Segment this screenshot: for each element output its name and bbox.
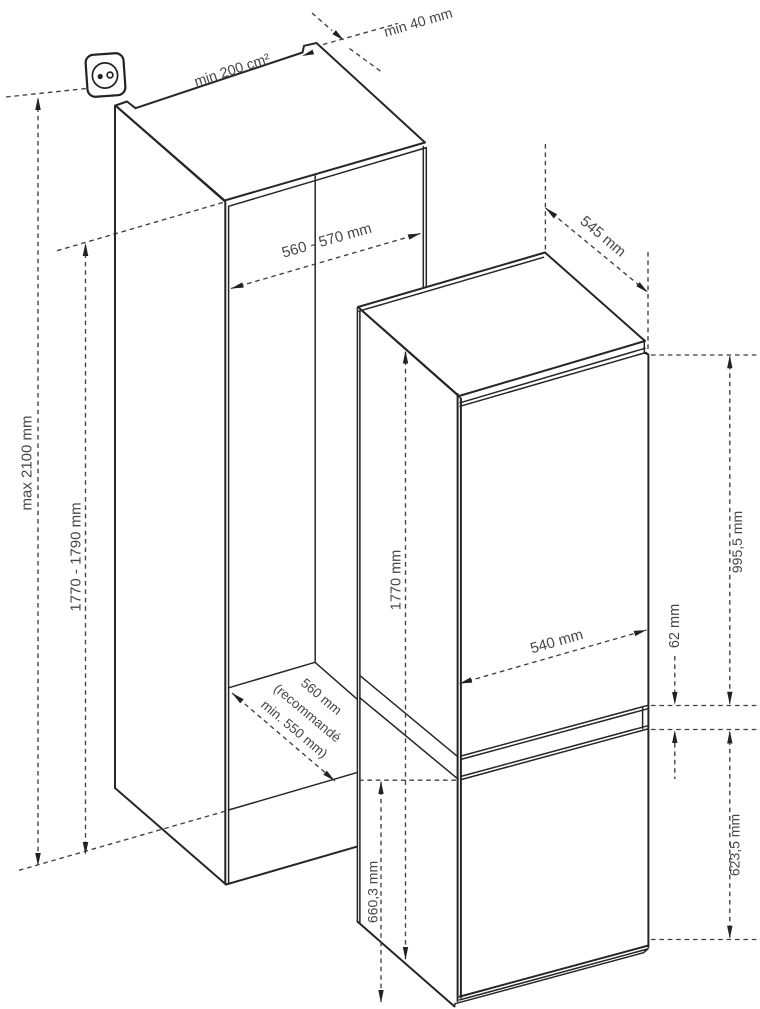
- svg-text:623,5 mm: 623,5 mm: [727, 814, 743, 876]
- svg-text:max 2100 mm: max 2100 mm: [19, 415, 36, 510]
- svg-text:1770 mm: 1770 mm: [389, 550, 405, 610]
- svg-text:995,5 mm: 995,5 mm: [729, 511, 745, 573]
- svg-text:660,3 mm: 660,3 mm: [365, 861, 381, 923]
- svg-text:1770 - 1790 mm: 1770 - 1790 mm: [68, 502, 85, 611]
- svg-text:62 mm: 62 mm: [667, 604, 683, 648]
